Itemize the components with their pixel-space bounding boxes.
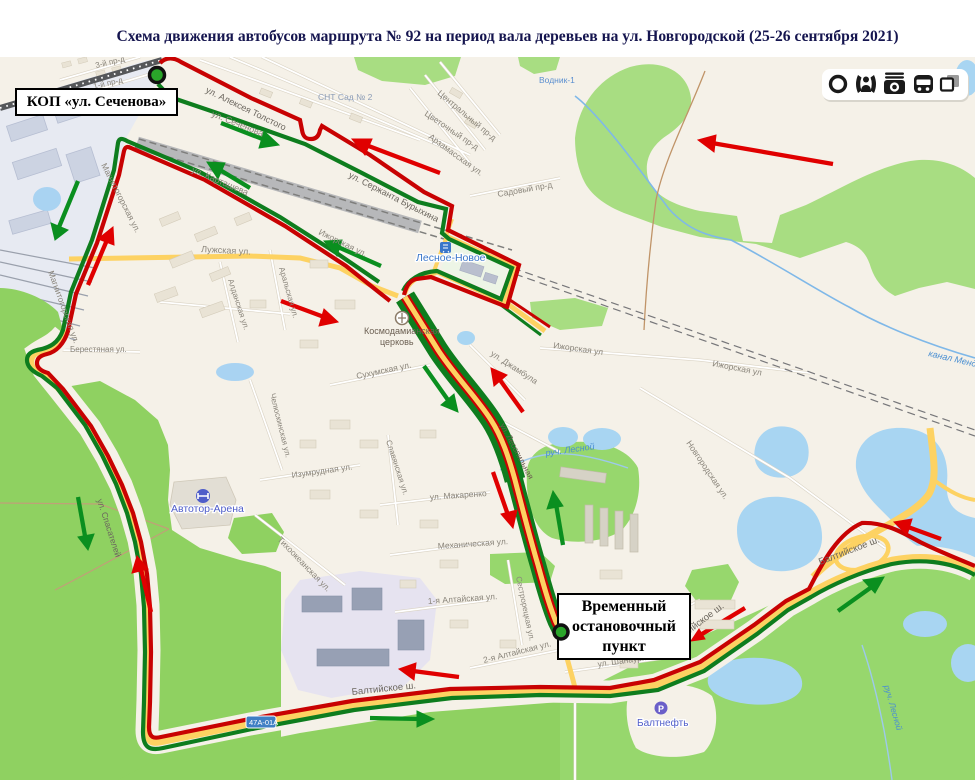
svg-text:P: P [658, 704, 664, 714]
svg-text:47А-01А: 47А-01А [249, 718, 278, 727]
svg-text:Космодамианская: Космодамианская [364, 326, 440, 336]
svg-text:церковь: церковь [380, 337, 414, 347]
svg-text:СНТ Сад № 2: СНТ Сад № 2 [318, 92, 373, 102]
svg-text:Берестяная ул.: Берестяная ул. [70, 345, 127, 354]
svg-text:Автотор-Арена: Автотор-Арена [171, 503, 244, 515]
svg-text:Лесное-Новое: Лесное-Новое [416, 252, 486, 264]
svg-text:Балтнефть: Балтнефть [637, 717, 688, 729]
svg-text:Водник-1: Водник-1 [539, 75, 575, 85]
